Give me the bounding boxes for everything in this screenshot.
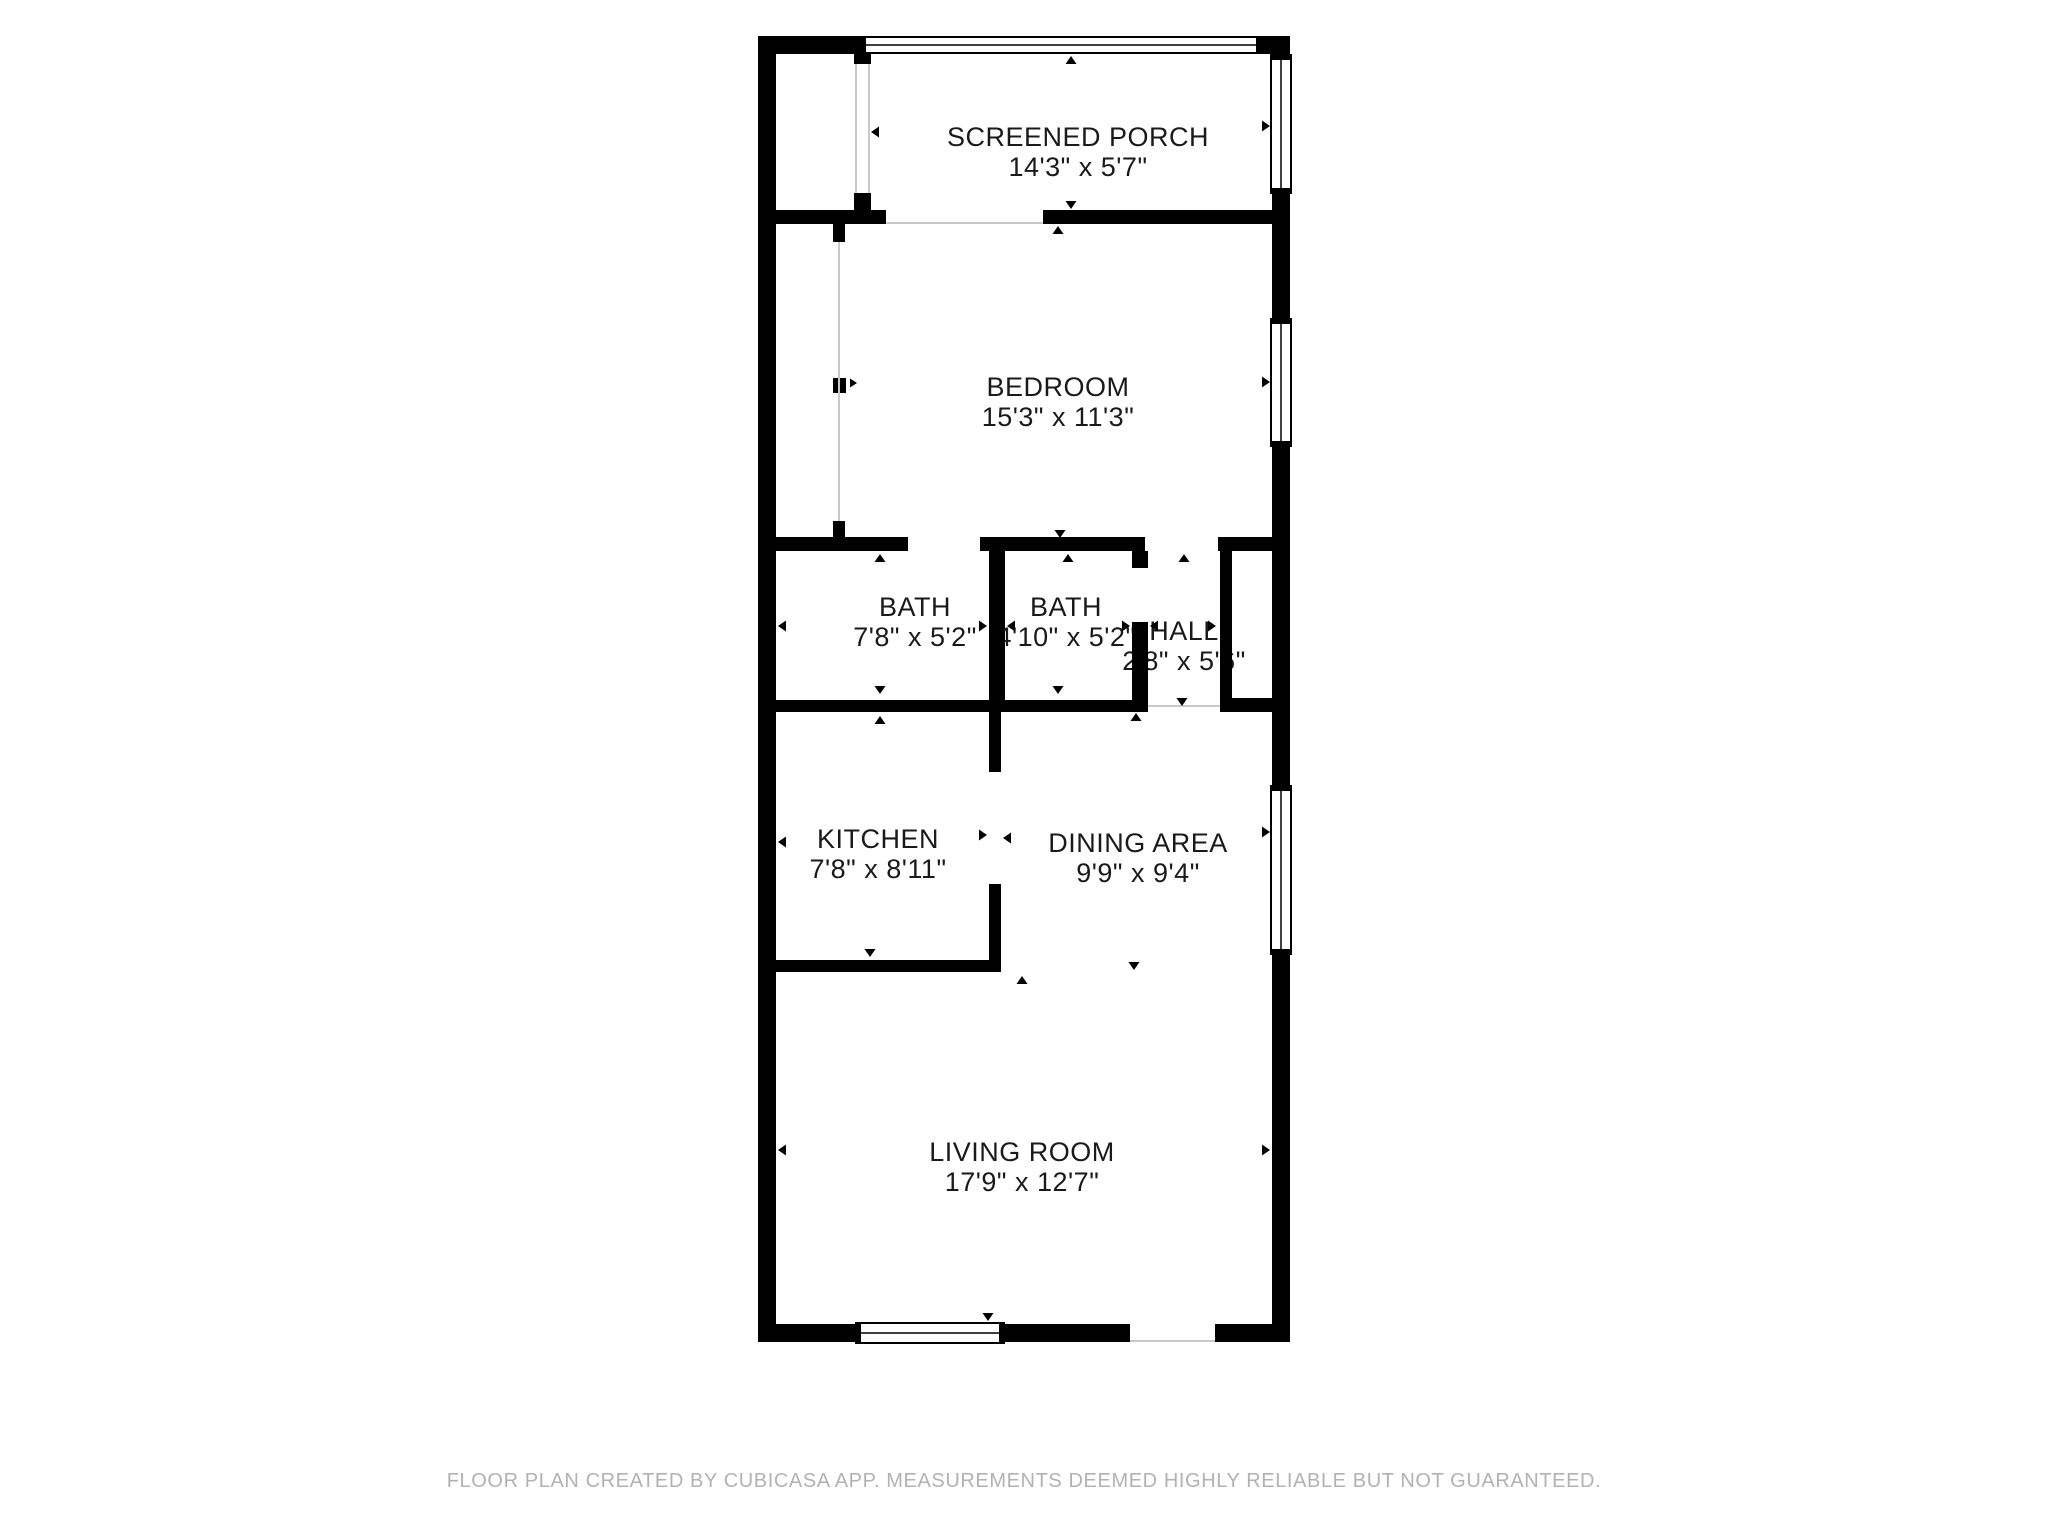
wall-bath-top-right	[1218, 537, 1272, 551]
window-end-cap	[1271, 55, 1291, 60]
wall-kitchen-right-upper	[989, 712, 1001, 772]
wall-bath-bottom	[758, 700, 1148, 712]
window-end-cap	[1256, 37, 1261, 53]
window-end-cap	[861, 37, 866, 53]
window-end-cap	[999, 1323, 1004, 1343]
window-end-cap	[1271, 188, 1291, 193]
opening-markers	[778, 56, 1270, 1321]
window-bedroom-right	[1270, 318, 1292, 447]
wall-hall-bottom-right	[1220, 698, 1272, 712]
triangle-markers-down	[865, 201, 1188, 1321]
interior-walls	[758, 36, 1272, 972]
window-end-cap	[856, 1323, 861, 1343]
footer-disclaimer: FLOOR PLAN CREATED BY CUBICASA APP. MEAS…	[0, 1470, 2048, 1493]
wall-exterior-left	[758, 36, 776, 1342]
window-end-cap	[1271, 786, 1291, 791]
window-end-cap	[1271, 949, 1291, 954]
wall-bath-divider	[989, 537, 1005, 712]
wall-porch-bottom	[1043, 210, 1272, 224]
triangle-markers-right	[850, 121, 1270, 1156]
window-dining-right	[1270, 785, 1292, 955]
window-porch-right	[1270, 54, 1292, 194]
wall-hall-right	[1220, 551, 1232, 698]
triangle-markers-left	[778, 127, 1158, 1156]
wall-hall-left-main	[1132, 622, 1148, 712]
window-end-cap	[1271, 441, 1291, 446]
wall-kitchen-bottom	[758, 960, 1001, 972]
wall-bedroom-partition-cap-top	[833, 224, 845, 242]
window-porch-top	[860, 36, 1262, 54]
floor-plan-drawing	[0, 0, 2048, 1536]
triangle-markers-up	[875, 56, 1190, 984]
wall-kitchen-right-lower	[989, 884, 1001, 972]
floor-plan-page: SCREENED PORCH 14'3" x 5'7" BEDROOM 15'3…	[0, 0, 2048, 1536]
wall-bedroom-partition-cap-bottom	[833, 521, 845, 537]
window-living-room-bottom	[855, 1322, 1005, 1344]
wall-closet-bottom	[758, 210, 886, 224]
window-end-cap	[1271, 319, 1291, 324]
wall-bath-top-left	[758, 537, 908, 551]
wall-exterior-right	[1272, 36, 1290, 1342]
wall-hall-left-stub	[1132, 551, 1148, 568]
